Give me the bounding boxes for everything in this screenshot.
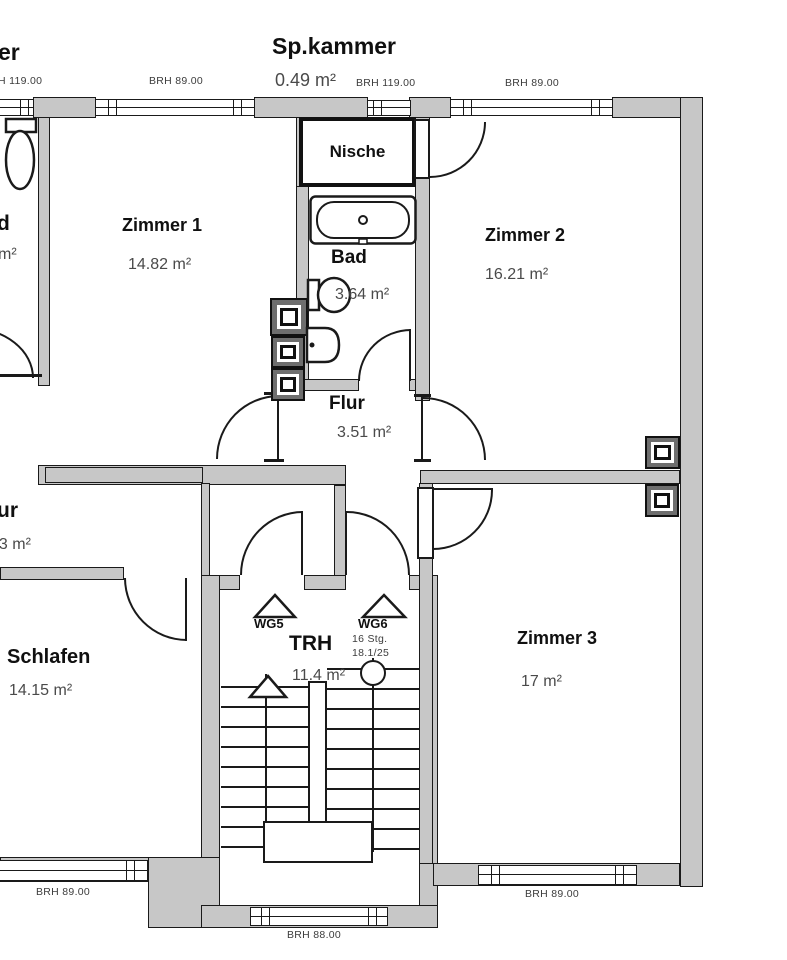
partial-room-label-left-a: d <box>0 212 10 235</box>
door-leaf-bad <box>409 329 411 381</box>
door-leaf-wg5 <box>301 511 303 575</box>
door-arc-left-partial <box>0 327 34 378</box>
door-arc-zimmer1 <box>216 395 279 459</box>
partial-room-area-left-a: m² <box>0 246 17 264</box>
bad-label: Bad <box>331 248 367 269</box>
trh-label: TRH <box>289 632 332 655</box>
wall-trh-top-b <box>304 575 346 590</box>
wall-zimmer2-left <box>415 176 430 401</box>
zimmer1-label: Zimmer 1 <box>122 216 202 236</box>
window-top-partial <box>0 99 34 116</box>
door-arc-wg6 <box>347 511 410 575</box>
brh-label-top-right: BRH 89.00 <box>505 78 559 90</box>
wall-zimmer2-zimmer3 <box>420 470 680 484</box>
trh-area: 11.4 m² <box>292 667 345 685</box>
nische-room: Nische <box>299 117 416 187</box>
brh-label-bottom-left: BRH 89.00 <box>36 887 90 899</box>
window-stairwell <box>250 907 388 926</box>
wall-top-a <box>33 97 96 118</box>
wg6-label: WG6 <box>358 617 388 631</box>
partial-room-label-left-b: ur <box>0 499 18 522</box>
door-arc-zimmer3 <box>433 490 493 550</box>
toilet-icon <box>4 117 38 191</box>
door-leaf-schlafen <box>185 578 187 641</box>
wall-schlafen-top <box>0 567 124 580</box>
wall-top-b <box>254 97 368 118</box>
sink-icon <box>303 325 341 365</box>
brh-label-top-mid: BRH 89.00 <box>149 76 203 88</box>
bad-area: 3.64 m² <box>335 286 389 304</box>
wg5-label: WG5 <box>254 617 284 631</box>
stairs-circle-marker <box>360 660 386 686</box>
stairs-direction-triangle-icon <box>248 674 288 699</box>
window-top-right <box>450 99 613 116</box>
spkammer-label: Sp.kammer <box>272 34 396 59</box>
zimmer1-area: 14.82 m² <box>128 256 191 274</box>
window-bottom-right <box>478 865 637 885</box>
shaft-symbol-5 <box>645 484 679 517</box>
window-top-left <box>95 99 255 116</box>
brh-label-bottom-right: BRH 89.00 <box>525 889 579 901</box>
flur-label: Flur <box>329 394 365 415</box>
wall-leftflur-top <box>45 467 203 483</box>
spkammer-area: 0.49 m² <box>275 71 336 91</box>
partial-room-area-left-b: 83 m² <box>0 536 31 554</box>
door-arc-bad <box>358 329 411 381</box>
brh-label-bottom-stair: BRH 88.00 <box>287 930 341 942</box>
door-arc-schlafen <box>124 578 187 641</box>
window-top-nische <box>367 100 411 116</box>
wall-top-c <box>409 97 451 118</box>
stairs-ratio-note: 18.1/25 <box>352 648 389 660</box>
brh-label-top-nische: BRH 119.00 <box>356 78 415 90</box>
wall-bad-bottom-left <box>296 379 359 391</box>
zimmer3-area: 17 m² <box>521 673 562 691</box>
stairs-steps-note: 16 Stg. <box>352 634 387 646</box>
door-arc-zimmer2 <box>423 397 486 460</box>
wall-right <box>680 97 703 887</box>
flur-area: 3.51 m² <box>337 424 391 442</box>
door-leaf-zimmer2 <box>421 397 423 460</box>
door-arc-wg5 <box>240 511 303 575</box>
bathtub-icon <box>309 195 417 245</box>
wall-trh-top-a <box>219 575 240 590</box>
zimmer3-label: Zimmer 3 <box>517 629 597 649</box>
shaft-symbol-2 <box>271 336 305 368</box>
nische-label: Nische <box>330 143 386 162</box>
window-bottom-left <box>0 860 148 881</box>
door-sill-left-partial <box>0 374 42 377</box>
door-sill-zimmer1-bottom <box>264 459 284 462</box>
door-arc-nische <box>430 122 486 178</box>
zimmer2-label: Zimmer 2 <box>485 226 565 246</box>
door-leaf-zimmer3 <box>433 488 493 490</box>
door-frame-zimmer3 <box>417 487 434 559</box>
brh-label-top-left: H 119.00 <box>0 76 42 88</box>
shaft-symbol-4 <box>645 436 680 469</box>
shaft-symbol-3 <box>271 368 305 401</box>
wall-zimmer1-left <box>38 117 50 386</box>
door-frame-nische <box>414 119 430 179</box>
wall-zimmer3-left <box>419 558 433 864</box>
partial-room-label-top-left: er <box>0 40 20 65</box>
wall-leftflur-right <box>201 483 210 576</box>
stairs-landing <box>263 821 373 863</box>
schlafen-label: Schlafen <box>7 646 90 668</box>
floor-plan: Nische <box>0 0 787 960</box>
zimmer2-area: 16.21 m² <box>485 266 548 284</box>
door-leaf-wg6 <box>345 511 347 575</box>
door-leaf-zimmer1 <box>277 395 279 459</box>
schlafen-area: 14.15 m² <box>9 682 72 700</box>
